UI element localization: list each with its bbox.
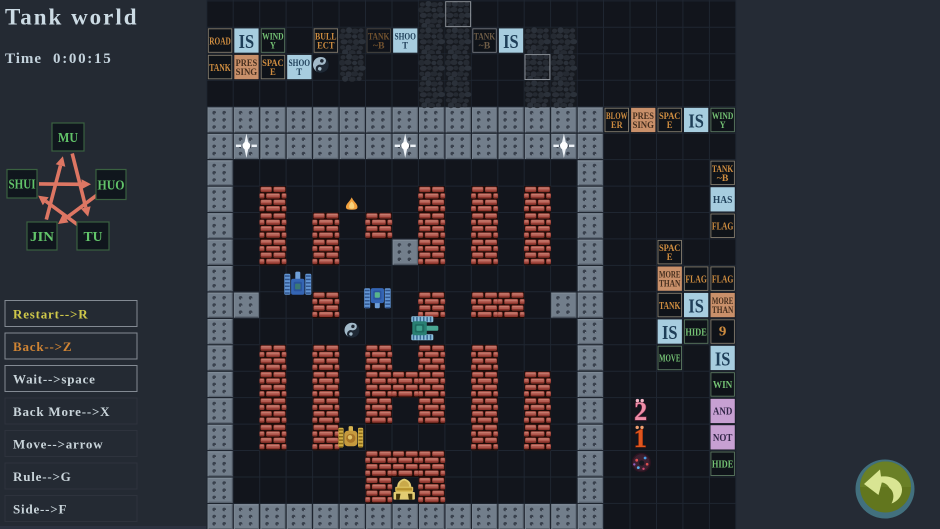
svg-text:T: T [296,67,302,77]
svg-text:ER: ER [611,120,623,130]
svg-text:SING: SING [236,67,258,77]
svg-text:E: E [270,67,276,77]
svg-text:~B: ~B [479,41,491,51]
svg-text:IS: IS [688,110,704,132]
svg-text:AND: AND [713,407,733,418]
svg-text:TU: TU [84,229,103,244]
svg-text:Restart-->R: Restart-->R [13,306,88,321]
svg-text:MOVE: MOVE [659,354,681,365]
svg-text:JIN: JIN [30,229,54,244]
svg-text:Side-->F: Side-->F [13,501,67,516]
svg-text:SING: SING [632,120,654,130]
svg-text:ROAD: ROAD [209,36,231,47]
svg-text:HUO: HUO [98,177,125,192]
svg-text:Time: Time [5,51,42,67]
svg-text:THAN: THAN [712,305,734,315]
svg-text:~B: ~B [373,41,385,51]
svg-text:E: E [667,120,673,130]
svg-text:0:00:15: 0:00:15 [53,51,112,67]
svg-text:FLAG: FLAG [712,222,734,233]
svg-text:HAS: HAS [713,195,733,206]
svg-text:ECT: ECT [317,41,334,51]
svg-text:Move-->arrow: Move-->arrow [13,436,103,451]
svg-text:Back-->Z: Back-->Z [13,339,72,354]
svg-text:IS: IS [715,348,731,370]
svg-text:WIN: WIN [713,380,733,391]
svg-text:MU: MU [58,130,78,145]
svg-text:HIDE: HIDE [685,327,707,338]
svg-text:Wait-->space: Wait-->space [13,371,96,386]
svg-text:TANK: TANK [659,301,681,312]
svg-text:FLAG: FLAG [712,274,734,285]
svg-text:E: E [667,252,673,262]
svg-text:Rule-->G: Rule-->G [13,469,72,484]
svg-text:THAN: THAN [659,279,681,289]
svg-text:Y: Y [720,120,726,130]
svg-text:Y: Y [270,41,276,51]
svg-text:NOT: NOT [713,433,733,444]
svg-text:IS: IS [239,31,255,53]
svg-text:T: T [402,41,408,51]
svg-text:FLAG: FLAG [685,274,707,285]
svg-text:TANK: TANK [209,63,231,74]
svg-text:IS: IS [662,322,678,344]
svg-text:IS: IS [688,295,704,317]
svg-text:9: 9 [719,324,727,339]
svg-text:Back More-->X: Back More-->X [13,404,110,419]
svg-text:~B: ~B [717,173,729,183]
svg-text:1: 1 [634,424,647,453]
svg-text:Tank world: Tank world [5,5,139,30]
svg-text:SHUI: SHUI [9,177,36,192]
svg-text:HIDE: HIDE [712,460,734,471]
svg-text:IS: IS [503,31,519,53]
